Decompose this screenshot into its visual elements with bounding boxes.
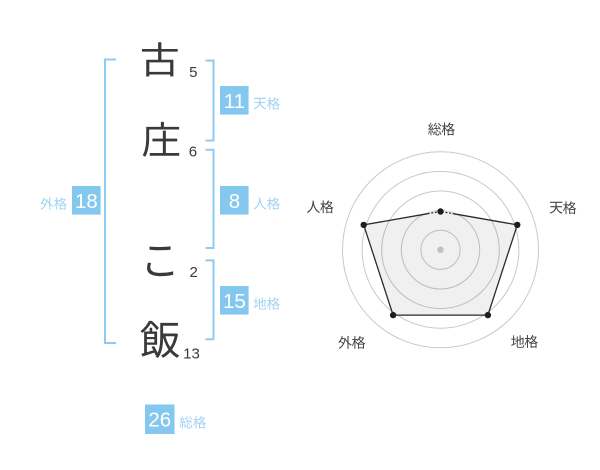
svg-text:2: 2 — [190, 264, 198, 281]
svg-text:11: 11 — [224, 90, 245, 113]
svg-text:18: 18 — [75, 190, 98, 213]
svg-text:26: 26 — [148, 409, 171, 432]
svg-text:6: 6 — [189, 144, 197, 161]
svg-text:15: 15 — [223, 290, 246, 313]
svg-text:13: 13 — [183, 345, 200, 362]
svg-text:5: 5 — [189, 64, 197, 81]
svg-text:8: 8 — [229, 190, 240, 213]
